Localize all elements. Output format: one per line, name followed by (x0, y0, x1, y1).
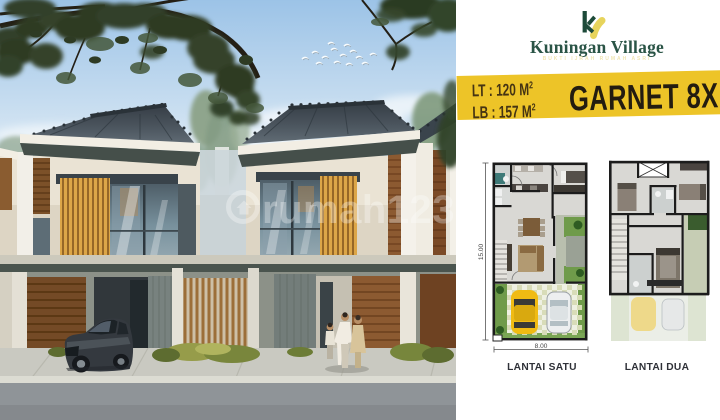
svg-text:LANTAI DUA: LANTAI DUA (625, 362, 690, 373)
svg-text:rumah123: rumah123 (262, 188, 455, 232)
svg-text:8.00: 8.00 (535, 343, 548, 350)
svg-text:LANTAI SATU: LANTAI SATU (507, 362, 577, 373)
svg-text:15.00: 15.00 (478, 243, 485, 260)
